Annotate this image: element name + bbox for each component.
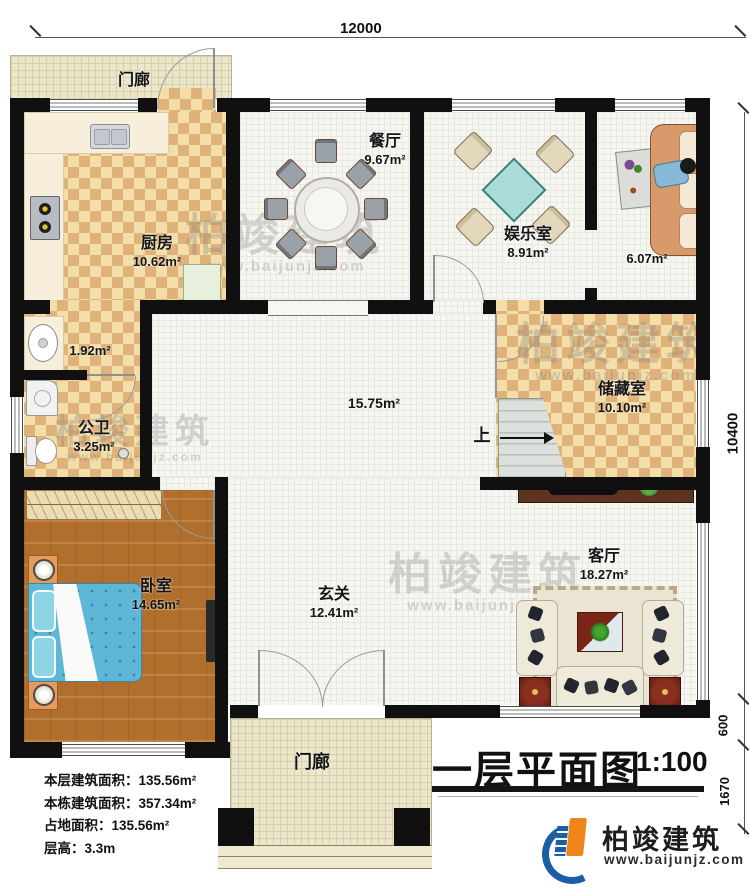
brand-logo: 柏竣建筑 www.baijunjz.com bbox=[540, 812, 745, 877]
window bbox=[500, 706, 640, 718]
dining-chair bbox=[264, 198, 288, 220]
stat-footprint: 占地面积：135.56m² bbox=[44, 815, 196, 838]
toilet-bowl bbox=[35, 438, 57, 464]
sofa-right bbox=[642, 600, 684, 676]
right-dimension-label: 10400 bbox=[724, 413, 741, 455]
wall bbox=[480, 477, 710, 490]
dining-label: 餐厅 9.67m² bbox=[364, 133, 405, 169]
wall bbox=[10, 300, 50, 314]
kitchen-label: 厨房 10.62m² bbox=[133, 235, 181, 271]
washer-door bbox=[34, 390, 51, 407]
window bbox=[452, 99, 555, 111]
window bbox=[11, 397, 23, 453]
dining-chair bbox=[315, 139, 337, 163]
bed bbox=[28, 583, 142, 682]
wall bbox=[585, 288, 597, 314]
lounge-label: 6.07m² bbox=[626, 250, 667, 268]
side-table bbox=[519, 677, 551, 707]
wall bbox=[10, 742, 62, 758]
window bbox=[50, 99, 138, 111]
basin-drain bbox=[38, 338, 48, 348]
wall bbox=[140, 300, 268, 314]
stairs-up-arrow bbox=[500, 437, 544, 439]
dining-table bbox=[294, 177, 360, 243]
sofa-pillow bbox=[563, 677, 580, 694]
wall bbox=[140, 314, 152, 478]
sofa-pillow bbox=[603, 677, 620, 694]
flower-decor bbox=[634, 164, 643, 173]
top-dimension-line bbox=[35, 37, 746, 38]
window bbox=[615, 99, 685, 111]
wall bbox=[640, 705, 710, 718]
wardrobe-rail bbox=[27, 504, 161, 505]
bed-sheet-fold bbox=[53, 584, 98, 681]
lamp bbox=[33, 684, 55, 706]
wall bbox=[138, 98, 157, 112]
porch-pillar-left bbox=[218, 808, 254, 846]
dining-table-inner bbox=[304, 187, 348, 231]
bedroom-door-gap bbox=[160, 477, 217, 490]
stove bbox=[30, 196, 60, 240]
window bbox=[697, 523, 709, 700]
brand-url: www.baijunjz.com bbox=[604, 852, 745, 867]
window bbox=[697, 380, 709, 447]
wall bbox=[215, 477, 228, 758]
floor-drain bbox=[118, 448, 129, 459]
wall bbox=[230, 705, 258, 718]
right-dimension-line bbox=[744, 112, 745, 834]
table-dot bbox=[662, 689, 668, 695]
porch-pillar-right bbox=[394, 808, 430, 846]
wash-basin bbox=[28, 324, 58, 362]
area-stats: 本层建筑面积：135.56m² 本栋建筑面积：357.34m² 占地面积：135… bbox=[44, 770, 196, 860]
wall bbox=[385, 705, 500, 718]
nightstand bbox=[28, 678, 58, 710]
sofa-pillow bbox=[621, 679, 639, 697]
stat-total-area: 本栋建筑面积：357.34m² bbox=[44, 793, 196, 816]
wardrobe bbox=[26, 490, 162, 520]
wall bbox=[585, 112, 597, 230]
plan-scale: 1:100 bbox=[636, 746, 708, 778]
vanity-label: 1.92m² bbox=[69, 342, 110, 360]
game-label: 娱乐室 8.91m² bbox=[504, 226, 552, 262]
cased-opening bbox=[268, 300, 368, 316]
window bbox=[62, 744, 185, 756]
side-table bbox=[649, 677, 681, 707]
kitchen-sink bbox=[90, 124, 130, 149]
sofa-left bbox=[516, 600, 558, 676]
wall bbox=[410, 112, 424, 314]
pillow-bed bbox=[32, 590, 56, 632]
living-label: 客厅 18.27m² bbox=[580, 548, 628, 584]
bath-label: 公卫 3.25m² bbox=[73, 420, 114, 456]
hall-floor bbox=[152, 314, 496, 478]
sofa-pillow bbox=[527, 649, 545, 667]
sofa-pillow bbox=[653, 649, 671, 667]
wall bbox=[10, 477, 160, 490]
dining-chair bbox=[315, 246, 337, 270]
porch-top-label: 门廊 bbox=[118, 72, 150, 90]
burner bbox=[39, 221, 51, 233]
porch-steps bbox=[218, 845, 432, 869]
wall bbox=[10, 453, 24, 758]
storage-label: 储藏室 10.10m² bbox=[598, 381, 646, 417]
table-plant bbox=[590, 622, 610, 642]
dim-tick bbox=[735, 25, 747, 37]
table-dot bbox=[532, 689, 538, 695]
wall bbox=[226, 112, 240, 314]
sofa-pillow bbox=[530, 628, 546, 644]
stair-rail-line bbox=[495, 314, 497, 398]
sofa-pillow bbox=[653, 605, 670, 622]
stairs-label: 上 bbox=[474, 426, 491, 446]
top-dimension-label: 12000 bbox=[340, 20, 382, 37]
stat-storey-height: 层高：3.3m bbox=[44, 838, 196, 861]
storage-door-gap bbox=[496, 300, 544, 314]
burner bbox=[39, 203, 51, 215]
sofa-pillow bbox=[527, 605, 544, 622]
floor-plan: 12000 10400 600 1670 门廊 门廊 柏竣建筑 www.baij… bbox=[0, 0, 750, 885]
wall bbox=[544, 300, 710, 314]
bedroom-label: 卧室 14.65m² bbox=[132, 578, 180, 614]
flower-decor bbox=[630, 187, 637, 194]
window bbox=[270, 99, 366, 111]
right-step-label: 600 bbox=[715, 715, 730, 737]
wall bbox=[483, 300, 496, 314]
coffee-table bbox=[577, 612, 623, 652]
stat-floor-area: 本层建筑面积：135.56m² bbox=[44, 770, 196, 793]
wall bbox=[366, 98, 452, 112]
sink-basin bbox=[94, 129, 110, 145]
person-head bbox=[680, 158, 696, 174]
sofa-pillow bbox=[652, 628, 668, 644]
wall bbox=[217, 98, 270, 112]
title-underline-thick bbox=[432, 786, 704, 792]
dim-tick bbox=[30, 25, 42, 37]
stairs-arrowhead bbox=[544, 432, 554, 444]
wall bbox=[10, 98, 24, 397]
title-underline-thin bbox=[438, 796, 698, 797]
washing-machine bbox=[26, 380, 58, 416]
foyer-label: 玄关 12.41m² bbox=[310, 586, 358, 622]
sofa-bottom bbox=[556, 666, 644, 710]
sink-basin bbox=[111, 129, 127, 145]
pillow-bed bbox=[32, 636, 56, 678]
wall bbox=[10, 370, 87, 380]
sofa-pillow bbox=[584, 680, 599, 695]
porch-bottom-label: 门廊 bbox=[294, 752, 330, 773]
wall bbox=[555, 98, 615, 112]
nightstand bbox=[28, 555, 58, 584]
right-porch-label: 1670 bbox=[717, 777, 732, 806]
hall-label: 15.75m² bbox=[348, 395, 400, 413]
wall bbox=[696, 98, 710, 380]
dining-chair bbox=[364, 198, 388, 220]
lamp bbox=[33, 559, 55, 581]
